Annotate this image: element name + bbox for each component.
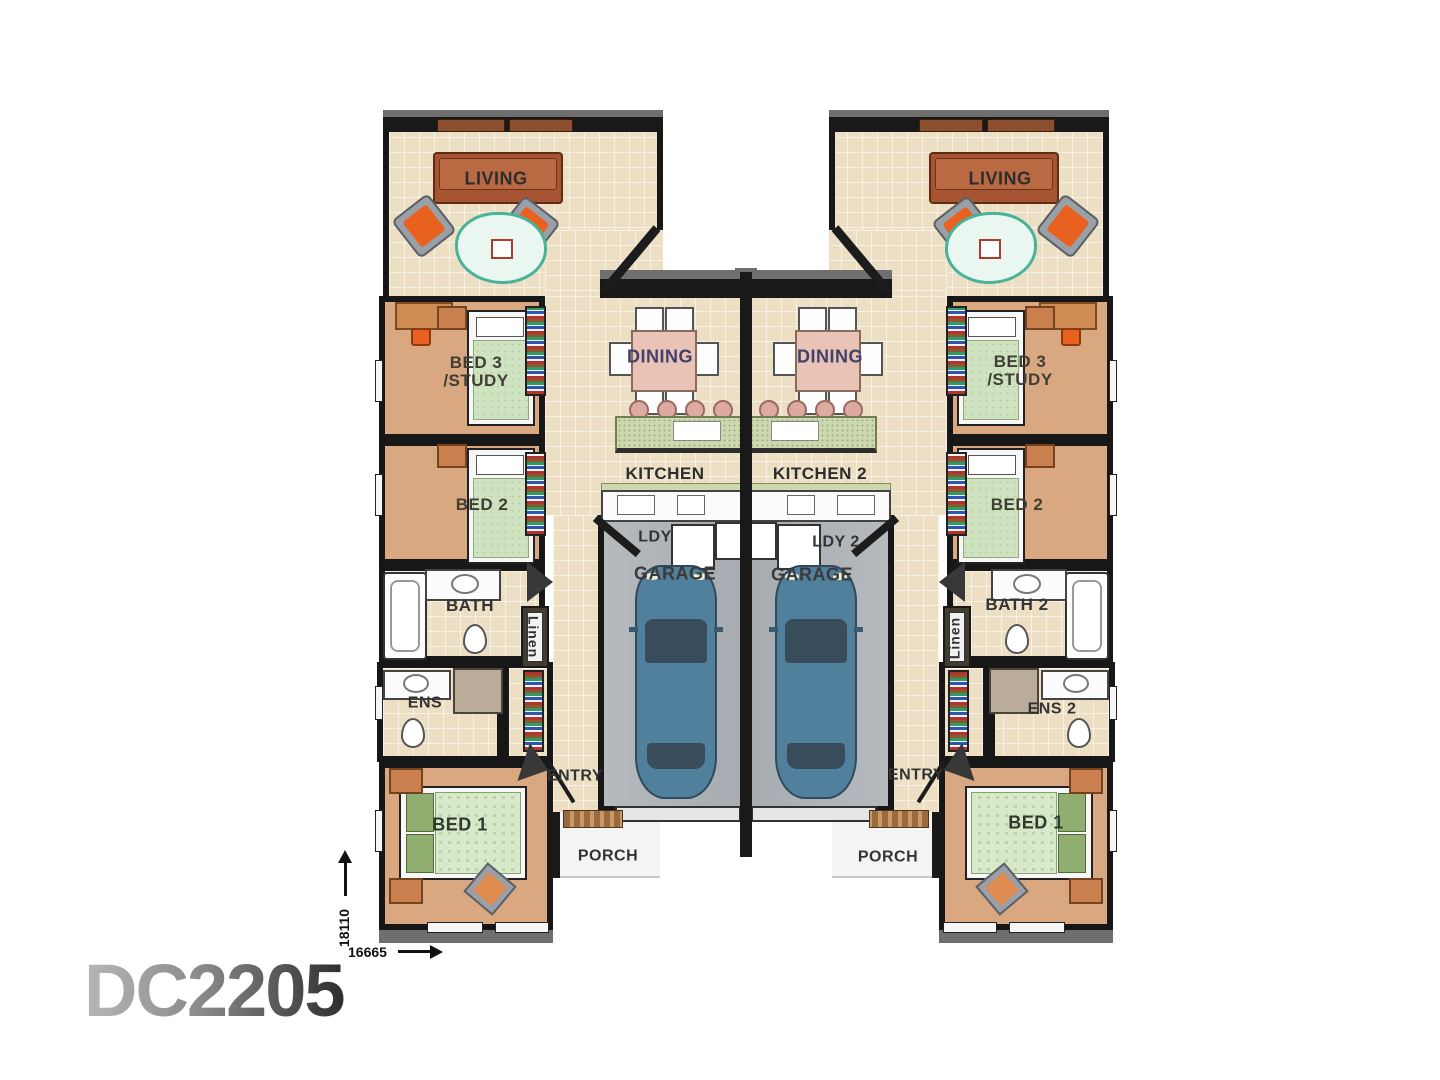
room-label-kitchen: KITCHEN 2 — [773, 465, 867, 483]
mattress-icon — [473, 478, 529, 558]
shower-icon — [453, 668, 503, 714]
armchair-seat-icon — [402, 204, 445, 248]
room-label-bed1: BED 1 — [432, 816, 488, 835]
room-label-porch: PORCH — [578, 849, 638, 866]
room-label-entry: ENTRY — [888, 768, 944, 785]
party-wall — [740, 272, 752, 857]
rug-icon — [455, 212, 547, 284]
room-label-bed3: BED 3 /STUDY — [443, 354, 508, 390]
car-rear-window-icon — [787, 743, 845, 769]
kitchen-counter-icon — [601, 490, 750, 522]
toilet-icon — [1005, 624, 1029, 654]
room-label-garage: GARAGE — [771, 566, 853, 585]
room-label-garage: GARAGE — [634, 565, 716, 584]
dimension-width: 16665 — [348, 944, 387, 960]
wardrobe-icon — [525, 306, 546, 396]
central-top-wall — [746, 279, 892, 298]
mattress-icon — [963, 478, 1019, 558]
garage-door-icon — [751, 806, 877, 822]
room-label-porch: PORCH — [858, 850, 918, 867]
room-label-laundry: LDY 2 — [812, 535, 860, 552]
window-icon — [1109, 360, 1117, 402]
chair-seat-icon — [473, 872, 507, 906]
room-label-kitchen: KITCHEN — [625, 465, 704, 483]
car-windshield-icon — [785, 619, 847, 663]
room-label-entry: ENTRY — [547, 769, 603, 786]
room-label-bath: BATH — [446, 597, 494, 615]
basin-icon — [1013, 574, 1041, 594]
room-label-living: LIVING — [968, 170, 1031, 189]
kitchen-sink-icon — [771, 421, 819, 441]
car-mirror-icon — [629, 627, 638, 632]
porch-side-wall — [932, 812, 941, 878]
duplex-floor-plan: LIVING BED 3 /STUDY BED 2 BATH ENS BED 1… — [375, 110, 1117, 948]
room-label-bed3-line1: BED 3 — [443, 354, 508, 372]
car-icon — [635, 565, 717, 799]
side-table-icon — [437, 306, 467, 330]
room-label-bed3: BED 3 /STUDY — [987, 353, 1052, 389]
pillow-icon — [406, 793, 434, 832]
tv-cabinet-icon — [437, 119, 505, 132]
garage-door-icon — [615, 806, 741, 822]
pillow-icon — [476, 317, 524, 337]
dimension-arrow-right-shaft — [398, 950, 430, 953]
living-wall-top — [829, 110, 1109, 117]
central-top-wall — [600, 279, 746, 298]
wardrobe-icon — [525, 452, 546, 536]
toilet-icon — [463, 624, 487, 654]
cooktop-icon — [617, 495, 655, 515]
plan-code-title: DC2205 — [84, 948, 344, 1033]
window-icon — [375, 686, 383, 720]
armchair-seat-icon — [1046, 204, 1089, 248]
basin-icon — [1063, 674, 1089, 693]
appliance-icon — [787, 495, 815, 515]
tv-cabinet-icon — [919, 119, 983, 132]
room-label-living: LIVING — [464, 170, 527, 189]
desk-chair-icon — [1061, 328, 1081, 346]
dimension-arrow-up-shaft — [344, 862, 347, 896]
entry-mat-icon — [869, 810, 929, 828]
tv-cabinet-icon — [987, 119, 1055, 132]
side-table-icon — [437, 444, 467, 468]
toilet-icon — [401, 718, 425, 748]
room-label-bed3-line1: BED 3 — [987, 353, 1052, 371]
bathtub-icon — [1065, 572, 1109, 660]
car-rear-window-icon — [647, 743, 705, 769]
pillow-icon — [406, 834, 434, 873]
bathtub-icon — [383, 572, 427, 660]
tv-cabinet-icon — [509, 119, 573, 132]
pillow-icon — [1058, 834, 1086, 873]
pillow-icon — [968, 317, 1016, 337]
kitchen-sink-icon — [673, 421, 721, 441]
pillow-icon — [968, 455, 1016, 475]
side-table-icon — [1025, 444, 1055, 468]
basin-icon — [403, 674, 429, 693]
unit-left-graphics — [375, 110, 746, 948]
appliance-icon — [677, 495, 705, 515]
window-icon — [943, 922, 997, 933]
room-label-linen: Linen — [526, 616, 541, 658]
room-label-bed3-line2: /STUDY — [987, 371, 1052, 389]
car-mirror-icon — [769, 627, 778, 632]
kitchen-island-icon — [742, 416, 877, 453]
room-label-bed3-line2: /STUDY — [443, 372, 508, 390]
window-icon — [1009, 922, 1065, 933]
wardrobe-icon — [946, 306, 967, 396]
room-label-bed1: BED 1 — [1008, 814, 1064, 833]
car-mirror-icon — [714, 627, 723, 632]
window-icon — [1109, 810, 1117, 852]
dining-chair-icon — [694, 342, 719, 376]
room-label-ens: ENS — [408, 696, 442, 713]
side-table-icon — [1069, 878, 1103, 904]
car-windshield-icon — [645, 619, 707, 663]
room-label-bed2: BED 2 — [456, 496, 509, 514]
wardrobe-icon — [523, 670, 544, 752]
room-label-dining: DINING — [627, 348, 693, 367]
basin-icon — [451, 574, 479, 594]
window-icon — [495, 922, 549, 933]
queen-bed-icon — [965, 786, 1093, 880]
room-label-bed2: BED 2 — [991, 496, 1044, 514]
room-label-laundry: LDY — [638, 530, 672, 547]
porch-side-wall — [551, 812, 560, 878]
car-icon — [775, 565, 857, 799]
coffee-table-icon — [979, 239, 1001, 259]
door-header-icon — [939, 562, 965, 602]
coffee-table-icon — [491, 239, 513, 259]
car-mirror-icon — [854, 627, 863, 632]
window-icon — [1109, 686, 1117, 720]
window-icon — [427, 922, 483, 933]
side-table-icon — [389, 878, 423, 904]
wardrobe-icon — [946, 452, 967, 536]
window-icon — [375, 360, 383, 402]
window-icon — [375, 474, 383, 516]
room-label-linen: Linen — [948, 617, 963, 659]
window-icon — [1109, 474, 1117, 516]
pillow-icon — [476, 455, 524, 475]
cooktop-icon — [837, 495, 875, 515]
dimension-arrow-right-icon — [430, 945, 443, 959]
kitchen-counter-icon — [742, 490, 891, 522]
kitchen-island-icon — [615, 416, 750, 453]
side-table-icon — [1069, 768, 1103, 794]
entry-mat-icon — [563, 810, 623, 828]
toilet-icon — [1067, 718, 1091, 748]
door-header-icon — [527, 562, 553, 602]
desk-chair-icon — [411, 328, 431, 346]
side-table-icon — [1025, 306, 1055, 330]
room-label-dining: DINING — [797, 348, 863, 367]
wardrobe-icon — [948, 670, 969, 752]
bathtub-inner-icon — [390, 580, 420, 652]
side-table-icon — [389, 768, 423, 794]
window-icon — [375, 810, 383, 852]
living-wall-top — [383, 110, 663, 117]
chair-seat-icon — [985, 872, 1019, 906]
floor-plan-canvas: LIVING BED 3 /STUDY BED 2 BATH ENS BED 1… — [0, 0, 1440, 1080]
bathtub-inner-icon — [1072, 580, 1102, 652]
room-label-ens: ENS 2 — [1028, 702, 1077, 719]
quilt-icon — [971, 792, 1057, 874]
room-label-bath: BATH 2 — [985, 596, 1048, 614]
